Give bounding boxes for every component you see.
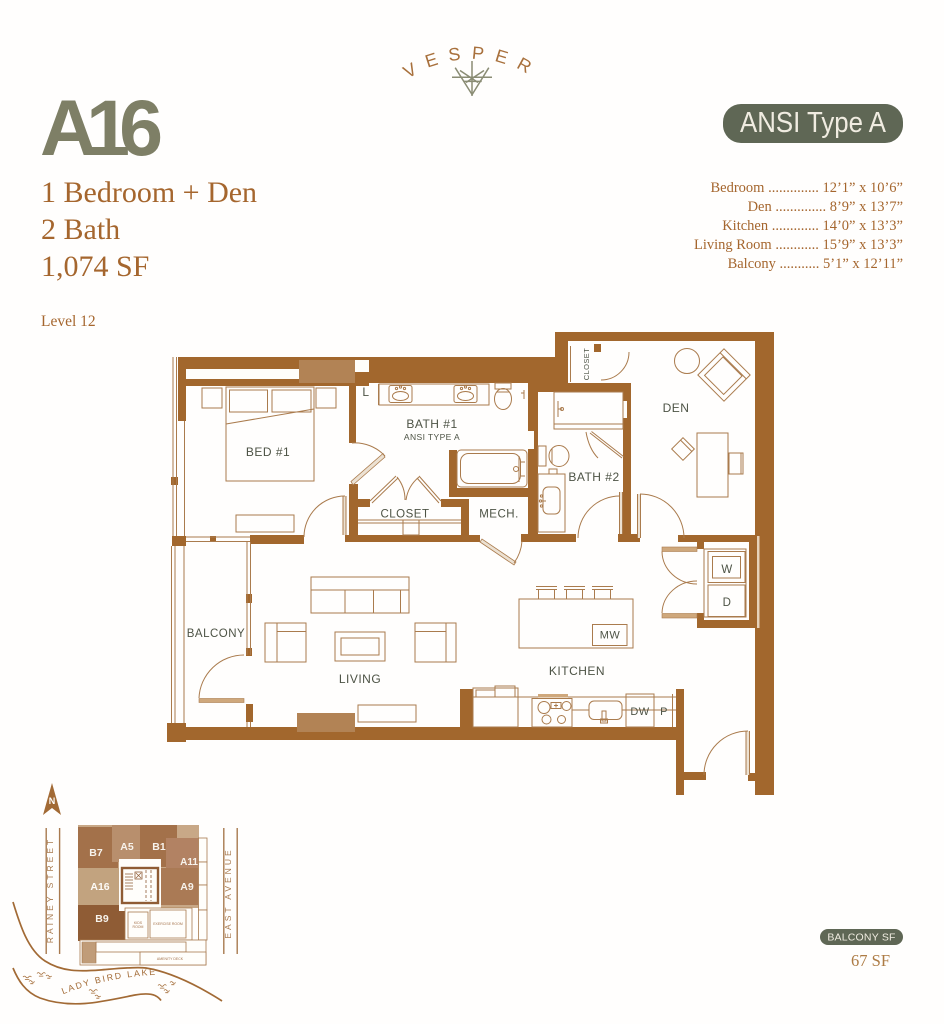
svg-text:1,074 SF: 1,074 SF <box>41 250 149 283</box>
svg-text:DW: DW <box>630 706 649 718</box>
svg-text:A5: A5 <box>120 841 134 853</box>
svg-text:L: L <box>362 385 369 399</box>
svg-text:BATH #2: BATH #2 <box>568 470 619 484</box>
svg-text:MW: MW <box>600 630 621 642</box>
svg-text:Kitchen ............. 14’0” x: Kitchen ............. 14’0” x 13’3” <box>722 218 903 234</box>
svg-text:B9: B9 <box>95 913 109 925</box>
svg-text:AMENITY DECK: AMENITY DECK <box>157 957 184 961</box>
svg-text:LIVING: LIVING <box>339 672 381 686</box>
svg-text:ANSI TYPE A: ANSI TYPE A <box>404 432 460 442</box>
svg-text:Den .............. 8’9” x 13’7: Den .............. 8’9” x 13’7” <box>748 199 903 215</box>
svg-text:A11: A11 <box>180 857 198 868</box>
svg-text:67 SF: 67 SF <box>851 951 890 970</box>
svg-text:CLOSET: CLOSET <box>582 348 591 380</box>
svg-text:BED #1: BED #1 <box>246 445 290 459</box>
svg-text:Bedroom .............. 12’1” x: Bedroom .............. 12’1” x 10’6” <box>711 180 904 196</box>
svg-text:Balcony ........... 5’1” x 12’: Balcony ........... 5’1” x 12’11” <box>728 256 903 272</box>
svg-text:Level 12: Level 12 <box>41 313 96 330</box>
svg-text:A16: A16 <box>40 83 163 172</box>
svg-text:P: P <box>660 706 668 718</box>
svg-text:2 Bath: 2 Bath <box>41 213 120 246</box>
svg-text:KITCHEN: KITCHEN <box>549 664 605 678</box>
svg-text:EAST AVENUE: EAST AVENUE <box>223 847 233 938</box>
svg-text:W: W <box>721 564 732 576</box>
svg-text:B1: B1 <box>152 841 166 853</box>
svg-text:N: N <box>49 796 56 806</box>
svg-text:B7: B7 <box>89 847 103 859</box>
svg-text:DEN: DEN <box>663 401 690 415</box>
svg-text:A16: A16 <box>90 881 109 893</box>
svg-text:BATH #1: BATH #1 <box>406 417 457 431</box>
svg-text:CLOSET: CLOSET <box>380 509 429 521</box>
svg-text:D: D <box>723 597 732 609</box>
svg-text:ANSI Type A: ANSI Type A <box>740 107 886 139</box>
svg-text:BALCONY: BALCONY <box>187 628 245 640</box>
svg-text:RAINEY STREET: RAINEY STREET <box>45 837 55 943</box>
svg-text:BALCONY SF: BALCONY SF <box>827 932 895 944</box>
svg-text:ROOM: ROOM <box>133 925 144 929</box>
svg-text:1 Bedroom + Den: 1 Bedroom + Den <box>41 176 257 209</box>
svg-text:EXERCISE ROOM: EXERCISE ROOM <box>153 922 183 926</box>
svg-text:A9: A9 <box>180 881 194 893</box>
svg-text:Living Room ............ 15’9”: Living Room ............ 15’9” x 13’3” <box>694 237 903 253</box>
svg-text:MECH.: MECH. <box>479 509 519 521</box>
